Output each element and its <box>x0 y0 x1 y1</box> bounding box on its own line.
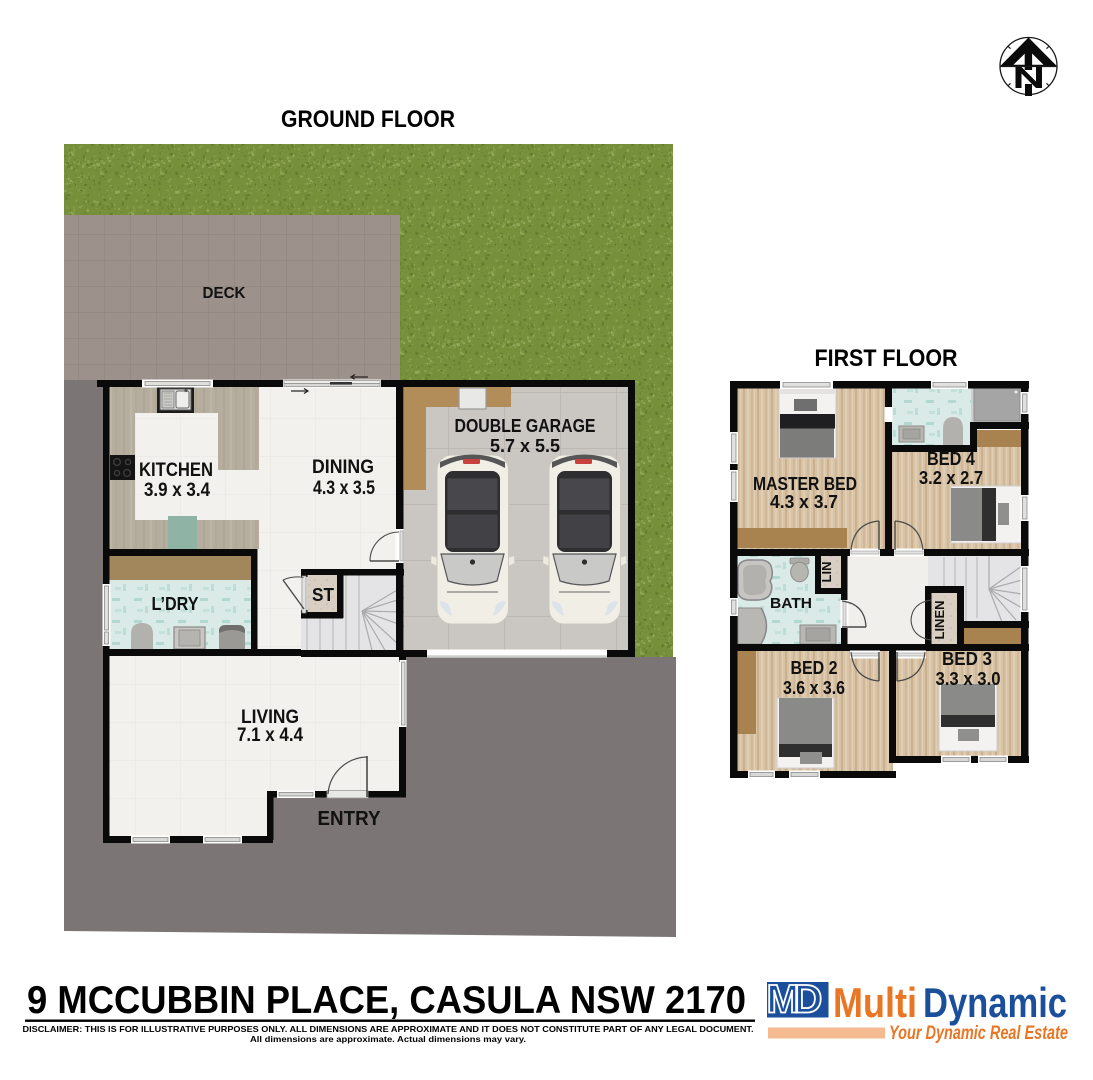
svg-text:KITCHEN: KITCHEN <box>139 460 213 481</box>
svg-text:All dimensions are approximate: All dimensions are approximate. Actual d… <box>250 1034 526 1044</box>
svg-text:D: D <box>794 978 823 1022</box>
svg-text:3.6 x 3.6: 3.6 x 3.6 <box>783 678 845 698</box>
svg-text:BATH: BATH <box>770 595 812 612</box>
svg-text:BED 3: BED 3 <box>942 649 992 669</box>
svg-text:GROUND FLOOR: GROUND FLOOR <box>281 106 455 133</box>
svg-text:Multi: Multi <box>833 979 917 1026</box>
svg-text:LIN: LIN <box>819 562 834 583</box>
svg-text:FIRST FLOOR: FIRST FLOOR <box>815 345 958 372</box>
svg-text:3.3 x 3.0: 3.3 x 3.0 <box>936 669 1001 689</box>
svg-text:3.2 x 2.7: 3.2 x 2.7 <box>919 468 983 488</box>
svg-text:DECK: DECK <box>203 285 246 302</box>
svg-text:DOUBLE GARAGE: DOUBLE GARAGE <box>455 416 596 436</box>
svg-text:9 MCCUBBIN PLACE, CASULA NSW 2: 9 MCCUBBIN PLACE, CASULA NSW 2170 <box>27 979 746 1022</box>
svg-text:L’DRY: L’DRY <box>152 594 199 614</box>
svg-text:Dynamic: Dynamic <box>923 979 1067 1026</box>
svg-text:4.3 x 3.5: 4.3 x 3.5 <box>313 478 375 499</box>
svg-text:Your Dynamic Real Estate: Your Dynamic Real Estate <box>889 1023 1068 1044</box>
svg-text:LINEN: LINEN <box>932 601 947 640</box>
svg-text:BED 2: BED 2 <box>791 658 838 678</box>
svg-text:DISCLAIMER: THIS IS FOR ILLUST: DISCLAIMER: THIS IS FOR ILLUSTRATIVE PUR… <box>23 1024 754 1034</box>
svg-text:4.3 x 3.7: 4.3 x 3.7 <box>770 492 838 512</box>
svg-text:7.1 x 4.4: 7.1 x 4.4 <box>237 725 303 746</box>
svg-text:ST: ST <box>312 585 334 605</box>
svg-text:MASTER BED: MASTER BED <box>753 474 857 494</box>
svg-text:3.9 x 3.4: 3.9 x 3.4 <box>144 480 210 501</box>
svg-text:ENTRY: ENTRY <box>318 808 382 830</box>
svg-text:5.7 x 5.5: 5.7 x 5.5 <box>490 436 560 456</box>
svg-text:BED 4: BED 4 <box>927 449 975 469</box>
svg-text:DINING: DINING <box>312 457 374 478</box>
